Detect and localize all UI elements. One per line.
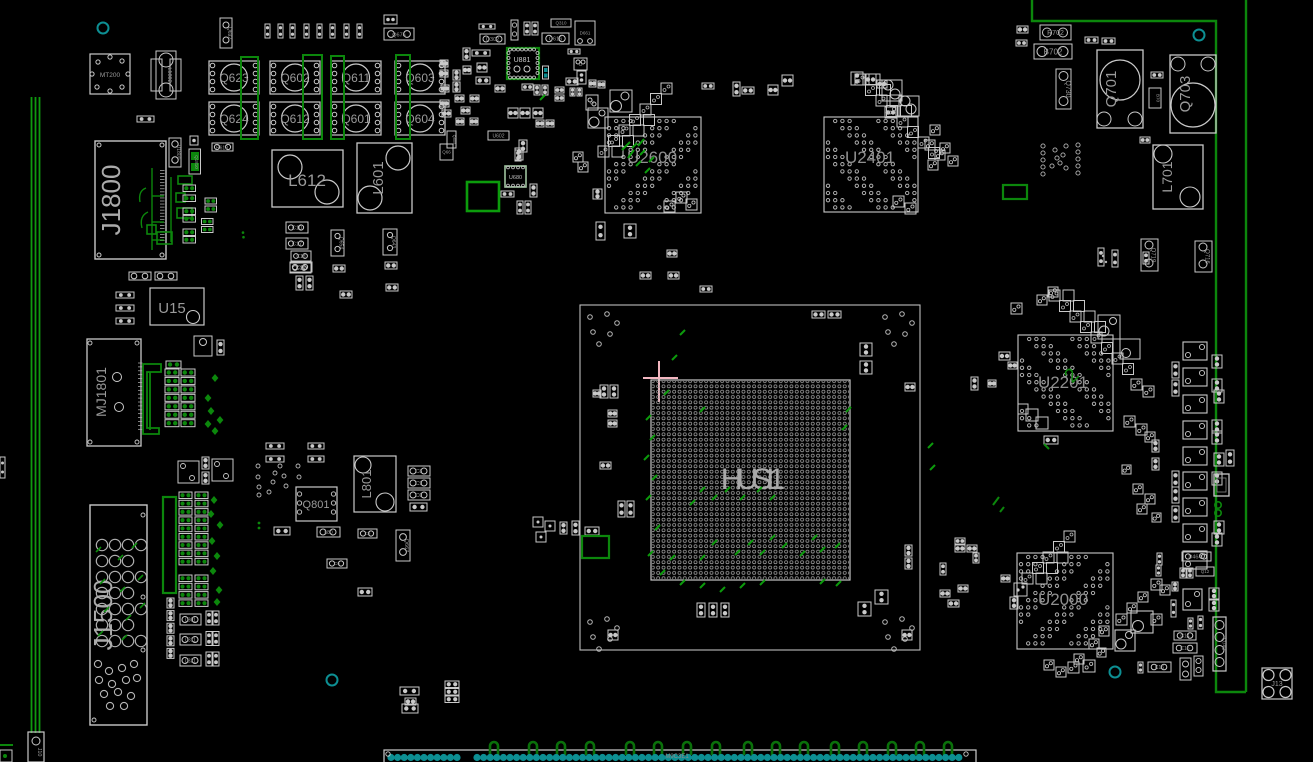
svg-text:D661: D661: [580, 31, 591, 36]
svg-text:D1800: D1800: [175, 145, 181, 160]
svg-text:R702: R702: [1047, 30, 1064, 37]
svg-text:Q12: Q12: [1201, 569, 1210, 574]
svg-text:C14: C14: [1180, 633, 1189, 639]
svg-text:Q: Q: [590, 100, 594, 106]
svg-text:D4640: D4640: [1188, 554, 1204, 560]
svg-text:Q616: Q616: [549, 36, 562, 42]
svg-text:J1800: J1800: [96, 165, 126, 236]
svg-text:U602: U602: [493, 133, 505, 139]
svg-text:C15: C15: [1180, 646, 1189, 652]
svg-text:L1802: L1802: [166, 67, 172, 82]
svg-text:B70: B70: [1156, 94, 1161, 103]
svg-text:U2000: U2000: [1038, 590, 1088, 609]
svg-text:C0: C0: [416, 493, 423, 499]
svg-text:Q676: Q676: [392, 33, 405, 39]
svg-text:Q602: Q602: [280, 71, 310, 85]
svg-text:L612: L612: [288, 171, 326, 190]
svg-text:R618: R618: [216, 146, 228, 152]
svg-text:Q801: Q801: [303, 499, 330, 511]
svg-text:M9C3E1: M9C3E1: [665, 754, 689, 760]
svg-text:HUSI1: HUSI1: [721, 463, 785, 496]
svg-text:C6: C6: [334, 561, 340, 566]
svg-text:Q624: Q624: [219, 112, 249, 126]
svg-text:Q701: Q701: [1103, 71, 1120, 108]
svg-text:Q623: Q623: [219, 71, 249, 85]
svg-text:Q703: Q703: [1177, 76, 1194, 113]
svg-text:U15: U15: [158, 300, 186, 317]
svg-text:C9: C9: [416, 481, 423, 487]
svg-text:L321: L321: [185, 658, 196, 664]
svg-text:Q1810: Q1810: [194, 155, 199, 169]
svg-text:J13: J13: [1271, 681, 1282, 688]
svg-text:Q601: Q601: [341, 112, 371, 126]
svg-text:Q667: Q667: [403, 539, 409, 552]
svg-text:B702: B702: [1044, 47, 1063, 56]
svg-text:Q692: Q692: [226, 27, 232, 39]
svg-text:L301: L301: [185, 617, 196, 623]
svg-text:Q302: Q302: [486, 37, 499, 43]
svg-text:C17: C17: [292, 241, 302, 247]
svg-text:U881: U881: [514, 57, 531, 64]
svg-text:C9: C9: [365, 531, 371, 536]
svg-text:C10: C10: [292, 225, 302, 231]
svg-text:Q310: Q310: [555, 21, 567, 26]
svg-text:MT200: MT200: [100, 72, 121, 79]
svg-text:L311: L311: [185, 637, 196, 643]
svg-text:U680: U680: [509, 175, 522, 181]
svg-text:J10: J10: [36, 748, 42, 757]
svg-text:U2401: U2401: [845, 148, 895, 167]
svg-text:U: U: [579, 62, 583, 68]
svg-text:L701: L701: [1159, 161, 1175, 192]
svg-text:C18: C18: [296, 254, 305, 260]
svg-text:Q612: Q612: [280, 112, 310, 126]
svg-text:Q716: Q716: [1204, 249, 1210, 264]
svg-text:Q611: Q611: [342, 71, 371, 85]
svg-text:Q740: Q740: [1220, 638, 1226, 650]
svg-text:MJ1801: MJ1801: [93, 367, 109, 417]
svg-text:Q654: Q654: [337, 237, 343, 249]
svg-text:L601: L601: [370, 161, 387, 194]
svg-text:Q66: Q66: [442, 150, 451, 155]
svg-text:C8: C8: [416, 469, 423, 475]
svg-text:Q719: Q719: [1150, 248, 1156, 263]
svg-text:C16: C16: [1155, 665, 1164, 671]
svg-text:L801: L801: [359, 470, 374, 499]
svg-text:C16: C16: [296, 265, 305, 271]
svg-text:Q730: Q730: [1064, 80, 1071, 97]
svg-text:Q643: Q643: [390, 236, 396, 248]
svg-text:L80: L80: [324, 530, 333, 536]
